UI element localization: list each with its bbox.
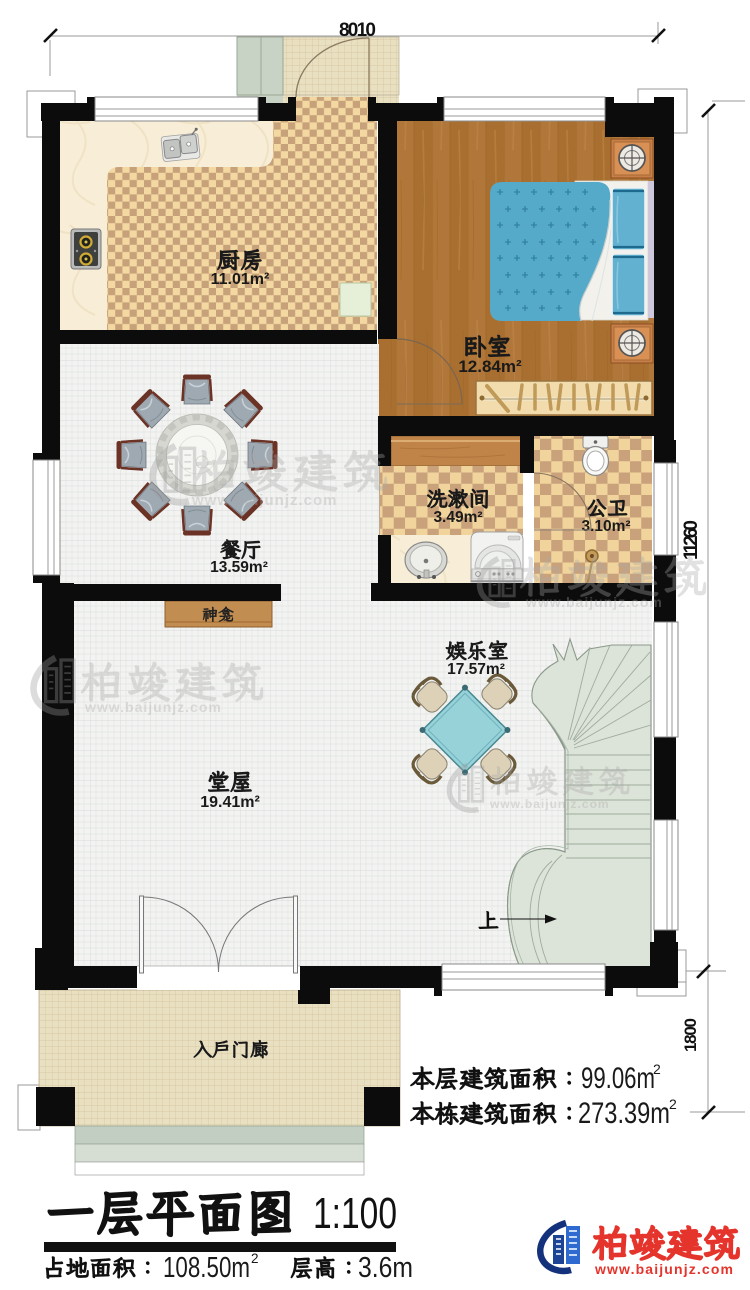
svg-text:www.baijunjz.com: www.baijunjz.com xyxy=(191,492,337,509)
svg-text:12.84m²: 12.84m² xyxy=(458,357,522,376)
svg-text:2: 2 xyxy=(251,1251,259,1266)
svg-text:13.59m²: 13.59m² xyxy=(210,559,268,576)
svg-text:www.baijunjz.com: www.baijunjz.com xyxy=(489,797,610,811)
svg-text:99.06m: 99.06m xyxy=(581,1062,655,1095)
svg-text:1:100: 1:100 xyxy=(313,1189,397,1238)
svg-text:www.baijunjz.com: www.baijunjz.com xyxy=(525,594,663,610)
svg-text:108.50m: 108.50m xyxy=(163,1252,250,1284)
svg-text:1800: 1800 xyxy=(681,1018,700,1052)
svg-text:11260: 11260 xyxy=(681,520,702,560)
svg-text:2: 2 xyxy=(653,1061,661,1077)
svg-text:2: 2 xyxy=(669,1096,677,1112)
svg-text:11.01m²: 11.01m² xyxy=(211,271,270,288)
svg-text:3.10m²: 3.10m² xyxy=(581,518,630,535)
svg-text:www.baijunjz.com: www.baijunjz.com xyxy=(84,699,222,715)
svg-text:3.6m: 3.6m xyxy=(358,1252,413,1284)
svg-text:www.baijunjz.com: www.baijunjz.com xyxy=(594,1261,733,1277)
svg-text:273.39m: 273.39m xyxy=(578,1097,670,1130)
svg-text:17.57m²: 17.57m² xyxy=(447,661,505,678)
svg-text:19.41m²: 19.41m² xyxy=(200,794,260,811)
svg-text:3.49m²: 3.49m² xyxy=(433,509,482,526)
